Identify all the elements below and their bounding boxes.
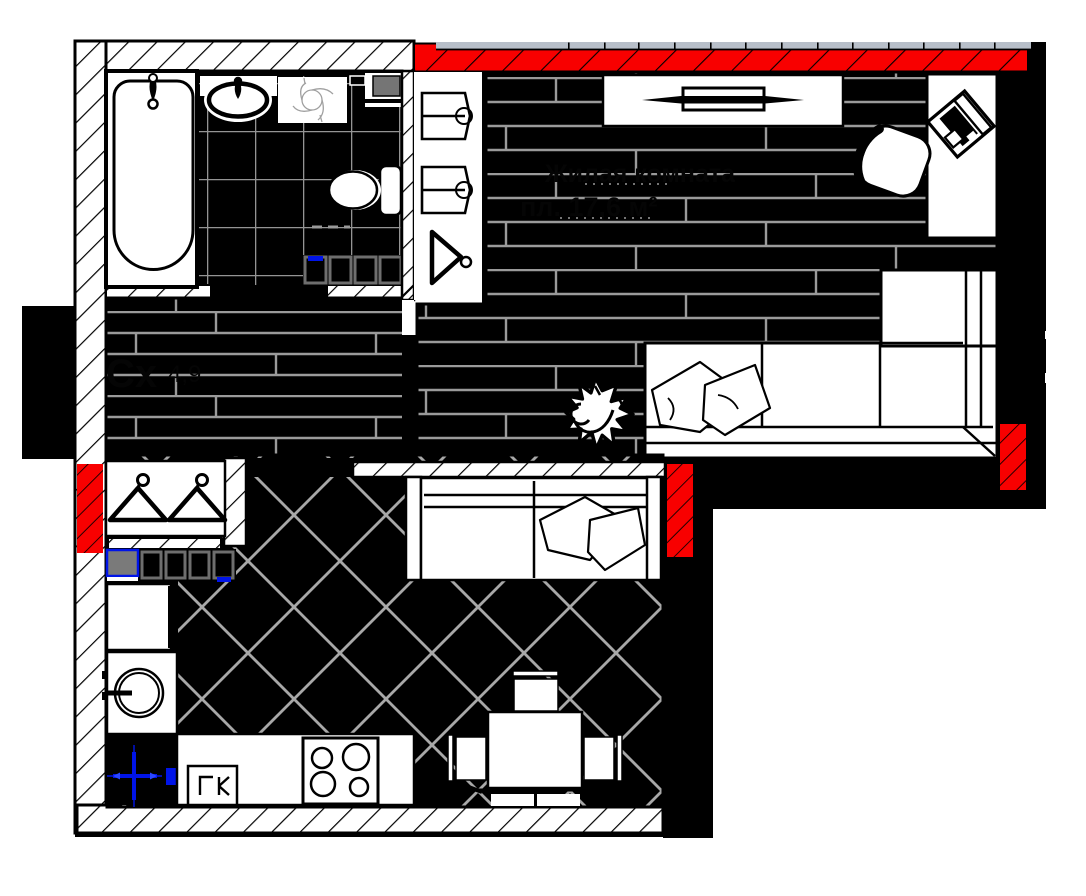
svg-text:Жилая комната: Жилая комната [544, 160, 736, 188]
svg-text:пл. 17,6 м²: пл. 17,6 м² [520, 192, 657, 222]
svg-text:4,9: 4,9 [168, 361, 201, 388]
svg-text:Сх: Сх [106, 352, 157, 396]
